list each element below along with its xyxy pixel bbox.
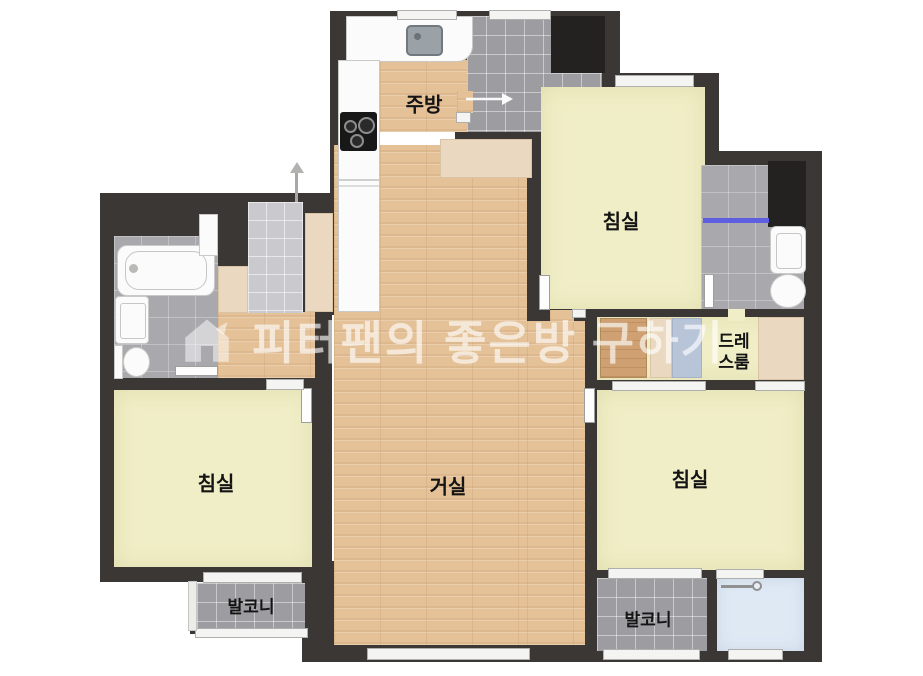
toilet-left [123,347,150,377]
sink-drain [414,33,421,40]
floor-plan: 주방 침실 침실 침실 거실 발코니 발코니 드레 스룸 피터팬의 좋은방 구하… [0,0,923,676]
label-balcony-left: 발코니 [228,593,275,618]
kitchen-sink [406,25,443,56]
window-bedroom-left-balcony [203,572,302,583]
sliding-door-dressroom-1 [612,381,706,391]
label-dressing-room-line1: 드레 [718,331,749,352]
window-living-room-outer [367,648,530,660]
door-opening-bedroom-left [266,379,304,390]
burner-icon [358,117,375,134]
bathtub-drain [129,264,138,273]
utility-slider-line [721,585,755,588]
opening-utility-room [716,569,764,579]
bathroom-left-sink [115,296,149,344]
window-kitchen [397,10,457,20]
toilet-right [770,274,806,308]
fridge-divider-2 [339,185,379,187]
pantry-floor [248,202,303,313]
dining-cabinet [440,139,532,178]
dressroom-wardrobe [758,317,804,380]
utility-cabinet-white [199,214,218,256]
sliding-door-dressroom-2 [755,381,805,391]
label-bedroom-left: 침실 [198,468,235,497]
door-sill-bedroom-tr [572,309,586,318]
bedroom-top-right-floor [541,87,705,309]
entry-door-jamb [456,112,471,123]
door-swing-arrow-head [290,162,304,173]
label-dressing-room-line2: 스룸 [718,352,749,373]
label-bedroom-bottom-right: 침실 [672,464,709,493]
cooktop [340,112,377,151]
dressroom-cabinet-wood [600,318,647,378]
label-dressing-room: 드레 스룸 [718,331,749,374]
door-opening-bedroom-tr [550,310,574,322]
sink-basin [120,303,146,339]
bedroom-left-door-leaf [301,388,312,423]
label-balcony-right: 발코니 [625,606,672,631]
window-bedroom-tr [615,75,694,87]
shower-partition-line [703,218,769,223]
living-room-floor-right [527,321,585,645]
window-balcony-left-outer [195,628,308,638]
bedroom-br-door-leaf [584,388,595,423]
bathroom-left-door-leaf [175,366,218,376]
door-opening-bathroom-right [728,309,745,321]
door-swing-arrow [295,172,298,202]
toilet-tank-left [114,345,123,379]
wall-hall-right [313,310,332,382]
bathroom-right-door-leaf [704,274,714,308]
label-living-room: 거실 [430,471,467,500]
window-utility-outer [728,649,783,660]
hallway-floor [218,312,315,378]
bathroom-right-closet [768,161,806,227]
utility-slider-knob [752,581,762,591]
window-entry [489,10,551,20]
balcony-left-side-frame [188,581,197,631]
burner-icon [344,120,357,133]
entry-closet [551,16,605,73]
dressroom-cabinet-beige [650,318,672,378]
sink-basin [776,233,802,269]
utility-cabinet-beige [218,266,248,313]
kitchen-counter-left [338,60,380,312]
window-bedroom-br-balcony [608,568,702,579]
window-balcony-right-outer [603,649,700,660]
bedroom-tr-door-leaf [539,275,550,310]
burner-icon [350,134,364,148]
dressroom-cabinet-blue [672,318,702,378]
label-kitchen: 주방 [406,89,443,118]
entrance-direction-arrow [464,90,514,108]
fridge-divider [339,179,379,181]
utility-cabinet-beige-2 [305,213,333,312]
bathroom-right-sink [770,226,806,274]
label-bedroom-top-right: 침실 [603,206,640,235]
